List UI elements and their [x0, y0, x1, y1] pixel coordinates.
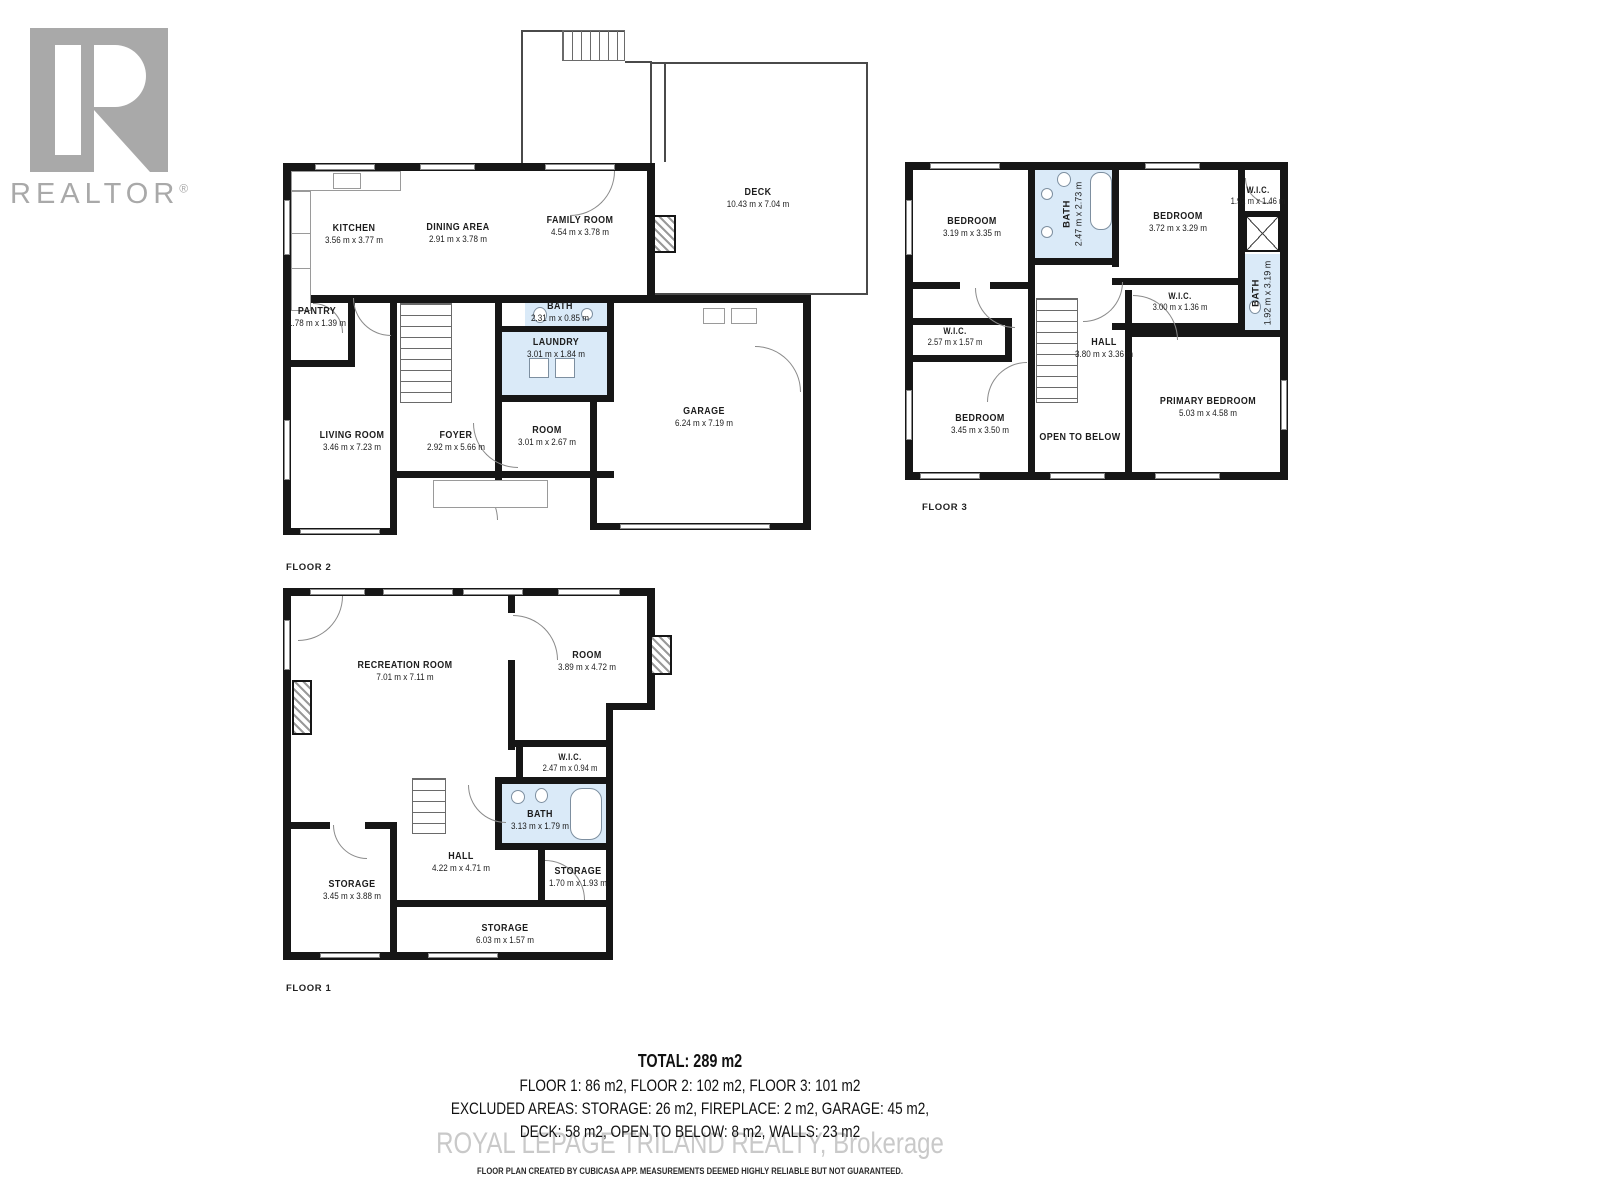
- wall-segment: [390, 295, 397, 535]
- deck-rail-seg: [625, 61, 652, 63]
- wall-segment: [495, 843, 613, 850]
- room-name: BATH: [531, 300, 589, 313]
- room-label-storage-left: STORAGE 3.45 m x 3.88 m: [323, 878, 381, 903]
- room-dims: 3.13 m x 1.79 m: [511, 821, 569, 833]
- floor-plan-page: REALTOR®: [0, 0, 1600, 1200]
- room-label-bath-top: BATH 2.47 m x 2.73 m: [1062, 182, 1085, 247]
- window: [1145, 163, 1200, 169]
- deck-rail-left: [521, 30, 523, 167]
- room-name: STORAGE: [323, 878, 381, 891]
- room-dims: 6.03 m x 1.57 m: [476, 935, 534, 947]
- room-dims: 2.47 m x 0.94 m: [543, 763, 598, 774]
- room-label-recreation: RECREATION ROOM 7.01 m x 7.11 m: [358, 659, 453, 684]
- room-label-dining: DINING AREA 2.91 m x 3.78 m: [426, 221, 489, 246]
- staircase: [1036, 298, 1078, 403]
- wall-segment: [647, 163, 655, 303]
- room-dims: 1.70 m x 1.93 m: [549, 878, 607, 890]
- wall-segment: [1125, 290, 1132, 472]
- room-dims: 1.92 m x 1.46 m: [1231, 196, 1286, 207]
- chimney-hatch: [292, 680, 312, 735]
- logo-r-bowl: [94, 45, 146, 107]
- door-arc: [333, 825, 367, 859]
- kitchen-sink: [333, 173, 361, 189]
- room-name: LAUNDRY: [527, 336, 585, 349]
- room-dims: 2.57 m x 1.57 m: [928, 337, 983, 348]
- room-name: KITCHEN: [325, 222, 383, 235]
- toilet: [535, 788, 548, 803]
- room-label-bath: BATH 3.13 m x 1.79 m: [511, 808, 569, 833]
- realtor-logo-icon: [30, 28, 168, 172]
- area-summary: TOTAL: 289 m2 FLOOR 1: 86 m2, FLOOR 2: 1…: [340, 1048, 1040, 1143]
- floor2-plan: KITCHEN 3.56 m x 3.77 m DINING AREA 2.91…: [283, 28, 883, 588]
- room-dims: 3.45 m x 3.88 m: [323, 891, 381, 903]
- room-dims: 6.24 m x 7.19 m: [675, 418, 733, 430]
- window: [315, 164, 375, 170]
- excluded-areas-line-2: DECK: 58 m2, OPEN TO BELOW: 8 m2, WALLS:…: [410, 1120, 970, 1143]
- room-name: W.I.C.: [928, 326, 983, 337]
- shower-crosshatch: [1245, 215, 1280, 252]
- room-dims: 3.56 m x 3.77 m: [325, 235, 383, 247]
- wall-segment: [590, 295, 810, 303]
- bathtub: [570, 788, 602, 840]
- door-arc: [1083, 282, 1123, 322]
- door-arc: [298, 596, 343, 641]
- room-dims: 3.46 m x 7.23 m: [320, 442, 385, 454]
- room-name: DINING AREA: [426, 221, 489, 234]
- logo-r-leg: [94, 110, 150, 172]
- room-dims: 2.91 m x 3.78 m: [426, 234, 489, 246]
- room-label-wic: W.I.C. 2.47 m x 0.94 m: [543, 752, 598, 774]
- window: [930, 163, 1000, 169]
- room-label-primary: PRIMARY BEDROOM 5.03 m x 4.58 m: [1160, 395, 1256, 420]
- room-name: STORAGE: [476, 922, 534, 935]
- staircase: [400, 303, 452, 403]
- room-name: FAMILY ROOM: [547, 214, 614, 227]
- wall-segment: [390, 471, 614, 478]
- window: [545, 164, 615, 170]
- window: [428, 953, 498, 958]
- wall-segment: [495, 777, 613, 784]
- deck-outline: [650, 62, 868, 295]
- realtor-wordmark: REALTOR®: [10, 178, 188, 211]
- room-label-bedroom-left: BEDROOM 3.19 m x 3.35 m: [943, 215, 1001, 240]
- room-dims: 3.01 m x 2.67 m: [518, 437, 576, 449]
- room-name: BEDROOM: [943, 215, 1001, 228]
- room-name: RECREATION ROOM: [358, 659, 453, 672]
- room-name: W.I.C.: [1153, 291, 1208, 302]
- deck-stairs: [562, 30, 625, 61]
- fireplace-hatch: [650, 635, 672, 675]
- window: [1155, 473, 1220, 479]
- wall-segment: [1280, 162, 1288, 480]
- room-dims: 3.45 m x 3.50 m: [951, 425, 1009, 437]
- room-name: STORAGE: [549, 865, 607, 878]
- deck-divider: [664, 62, 666, 162]
- room-name: BATH: [511, 808, 569, 821]
- door-arc: [755, 346, 801, 392]
- room-dims: 2.31 m x 0.85 m: [531, 313, 589, 325]
- room-dims: 4.54 m x 3.78 m: [547, 227, 614, 239]
- window: [463, 589, 523, 595]
- sink: [1041, 188, 1053, 200]
- room-dims: 3.80 m x 3.36 m: [1075, 349, 1133, 361]
- room-name: BATH: [1062, 182, 1074, 247]
- wall-segment: [607, 295, 614, 402]
- room-name: DECK: [727, 186, 789, 199]
- room-dims: 2.47 m x 2.73 m: [1074, 182, 1085, 247]
- room-label-wic-mid: W.I.C. 3.00 m x 1.36 m: [1153, 291, 1208, 313]
- room-name: W.I.C.: [543, 752, 598, 763]
- window: [920, 473, 980, 479]
- window: [310, 589, 365, 595]
- window: [906, 200, 912, 255]
- floor-areas-line: FLOOR 1: 86 m2, FLOOR 2: 102 m2, FLOOR 3…: [410, 1074, 970, 1097]
- wall-segment: [390, 900, 606, 907]
- registered-mark: ®: [179, 181, 188, 195]
- room-dims: 3.00 m x 1.36 m: [1153, 302, 1208, 313]
- room-label-room: ROOM 3.89 m x 4.72 m: [558, 649, 616, 674]
- room-label-bath: BATH 2.31 m x 0.85 m: [531, 300, 589, 325]
- room-name: FOYER: [427, 429, 485, 442]
- floor3-label: FLOOR 3: [922, 502, 967, 513]
- room-label-pantry: PANTRY 1.78 m x 1.39 m: [288, 305, 346, 330]
- room-dims: 10.43 m x 7.04 m: [727, 199, 789, 211]
- window: [284, 200, 290, 255]
- room-label-bedroom-right: BEDROOM 3.72 m x 3.29 m: [1149, 210, 1207, 235]
- room-label-bath-right: BATH 1.92 m x 3.19 m: [1251, 261, 1274, 326]
- room-name: GARAGE: [675, 405, 733, 418]
- room-name: W.I.C.: [1231, 185, 1286, 196]
- door-arc: [513, 615, 558, 660]
- room-label-garage: GARAGE 6.24 m x 7.19 m: [675, 405, 733, 430]
- room-label-storage-bottom: STORAGE 6.03 m x 1.57 m: [476, 922, 534, 947]
- room-name: HALL: [1075, 336, 1133, 349]
- wall-segment: [606, 703, 655, 710]
- door-arc: [987, 362, 1027, 402]
- room-label-family: FAMILY ROOM 4.54 m x 3.78 m: [547, 214, 614, 239]
- washer: [529, 358, 549, 378]
- sink: [511, 790, 525, 804]
- room-dims: 1.92 m x 3.19 m: [1263, 261, 1274, 326]
- room-label-living: LIVING ROOM 3.46 m x 7.23 m: [320, 429, 385, 454]
- garage-utility: [703, 308, 725, 324]
- room-name: BEDROOM: [1149, 210, 1207, 223]
- room-dims: 3.72 m x 3.29 m: [1149, 223, 1207, 235]
- room-label-wic-top: W.I.C. 1.92 m x 1.46 m: [1231, 185, 1286, 207]
- room-dims: 3.89 m x 4.72 m: [558, 662, 616, 674]
- disclaimer-note: FLOOR PLAN CREATED BY CUBICASA APP. MEAS…: [410, 1166, 970, 1177]
- garage-utility: [731, 308, 757, 324]
- room-dims: 7.01 m x 7.11 m: [358, 672, 453, 684]
- wall-segment: [803, 295, 811, 530]
- floor1-label: FLOOR 1: [286, 983, 331, 994]
- room-label-laundry: LAUNDRY 3.01 m x 1.84 m: [527, 336, 585, 361]
- logo-r-stem: [55, 45, 81, 155]
- window: [1050, 473, 1105, 479]
- room-name: PRIMARY BEDROOM: [1160, 395, 1256, 408]
- window: [383, 589, 453, 595]
- window: [1281, 380, 1287, 430]
- porch-outline: [433, 480, 548, 508]
- wall-segment: [905, 355, 1012, 362]
- wall-segment: [1112, 162, 1119, 267]
- room-dims: 1.78 m x 1.39 m: [288, 318, 346, 330]
- room-label-hall: HALL 4.22 m x 4.71 m: [432, 850, 490, 875]
- door-arc: [468, 785, 506, 823]
- room-name: LIVING ROOM: [320, 429, 385, 442]
- wall-segment: [283, 822, 330, 829]
- room-dims: 5.03 m x 4.58 m: [1160, 408, 1256, 420]
- stove: [291, 233, 311, 269]
- floor1-plan: RECREATION ROOM 7.01 m x 7.11 m ROOM 3.8…: [283, 585, 683, 1000]
- window: [284, 420, 290, 480]
- staircase: [412, 778, 446, 834]
- room-label-deck: DECK 10.43 m x 7.04 m: [727, 186, 789, 211]
- window: [558, 589, 620, 595]
- room-label-hall: HALL 3.80 m x 3.36 m: [1075, 336, 1133, 361]
- wall-segment: [1028, 258, 1119, 265]
- wall-segment: [1028, 162, 1035, 298]
- door-arc: [570, 171, 615, 216]
- room-name: HALL: [432, 850, 490, 863]
- room-label-wic-left: W.I.C. 2.57 m x 1.57 m: [928, 326, 983, 348]
- window: [906, 390, 912, 440]
- window: [284, 620, 290, 670]
- window: [420, 164, 475, 170]
- floor2-label: FLOOR 2: [286, 562, 331, 573]
- door-arc: [353, 298, 391, 336]
- room-name: PANTRY: [288, 305, 346, 318]
- wall-segment: [538, 850, 545, 900]
- total-area-line: TOTAL: 289 m2: [410, 1048, 970, 1074]
- room-dims: 4.22 m x 4.71 m: [432, 863, 490, 875]
- dryer: [555, 358, 575, 378]
- wall-segment: [1112, 278, 1245, 285]
- room-label-room: ROOM 3.01 m x 2.67 m: [518, 424, 576, 449]
- excluded-areas-line-1: EXCLUDED AREAS: STORAGE: 26 m2, FIREPLAC…: [410, 1097, 970, 1120]
- room-label-open-to-below: OPEN TO BELOW: [1039, 431, 1120, 444]
- room-name: BATH: [1251, 261, 1263, 326]
- room-label-kitchen: KITCHEN 3.56 m x 3.77 m: [325, 222, 383, 247]
- floor3-plan: BEDROOM 3.19 m x 3.35 m BATH 2.47 m x 2.…: [905, 160, 1305, 520]
- window: [300, 529, 380, 534]
- window: [320, 953, 380, 958]
- garage-door: [620, 524, 770, 529]
- wall-segment: [390, 822, 397, 952]
- wall-segment: [905, 282, 960, 289]
- wall-segment: [1028, 282, 1035, 472]
- room-label-foyer: FOYER 2.92 m x 5.66 m: [427, 429, 485, 454]
- wall-segment: [283, 360, 355, 367]
- room-name: ROOM: [558, 649, 616, 662]
- room-name: BEDROOM: [951, 412, 1009, 425]
- room-name: ROOM: [518, 424, 576, 437]
- wall-segment: [508, 660, 515, 750]
- wall-segment: [508, 740, 613, 747]
- room-name: OPEN TO BELOW: [1039, 431, 1120, 444]
- room-dims: 3.01 m x 1.84 m: [527, 349, 585, 361]
- bathtub: [1090, 172, 1112, 230]
- room-dims: 3.19 m x 3.35 m: [943, 228, 1001, 240]
- room-label-storage-right: STORAGE 1.70 m x 1.93 m: [549, 865, 607, 890]
- room-dims: 2.92 m x 5.66 m: [427, 442, 485, 454]
- room-label-bedroom-bottom: BEDROOM 3.45 m x 3.50 m: [951, 412, 1009, 437]
- sink: [1041, 226, 1053, 238]
